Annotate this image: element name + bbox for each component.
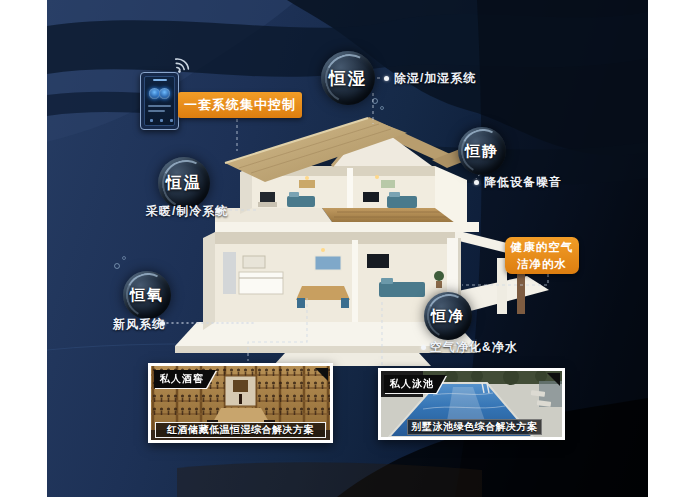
card-corner-ribbon — [547, 373, 560, 386]
bullet-dot — [421, 345, 426, 350]
smart-controller-phone — [140, 72, 179, 130]
bubble-temperature: 恒温 — [158, 157, 210, 209]
pool-card-badge: 私人泳池 — [384, 375, 446, 393]
phone-readout-row — [148, 105, 171, 107]
phone-dock-icon — [150, 119, 153, 122]
bubble-quiet: 恒静 — [458, 127, 506, 175]
wine-card-caption: 红酒储藏低温恒湿综合解决方案 — [155, 422, 326, 438]
desc-purify: 空气净化&净水 — [430, 339, 518, 356]
bubble-temperature-label: 恒温 — [166, 173, 202, 194]
bullet-dot — [216, 208, 221, 213]
phone-readout-row — [148, 110, 165, 112]
infographic-canvas: 一套系统集中控制 健康的空气 洁净的水 恒湿 除湿/加湿系统 恒静 降低设备噪音… — [0, 0, 700, 497]
artwork-background: 一套系统集中控制 健康的空气 洁净的水 恒湿 除湿/加湿系统 恒静 降低设备噪音… — [47, 0, 648, 497]
bullet-dot — [160, 321, 165, 326]
phone-app-titlebar — [153, 79, 167, 81]
control-knob-icon — [159, 88, 170, 99]
wine-card-badge-label: 私人酒窖 — [154, 370, 216, 388]
bubble-purify-label: 恒净 — [431, 307, 465, 326]
bubble-purify: 恒净 — [424, 292, 472, 340]
healthy-line2: 洁净的水 — [517, 256, 567, 273]
desc-oxygen: 新风系统 — [113, 316, 165, 333]
wine-cellar-card: 私人酒窖 红酒储藏低温恒湿综合解决方案 — [148, 363, 333, 443]
phone-dock-icon — [160, 119, 163, 122]
wifi-icon — [168, 54, 190, 74]
healthy-line1: 健康的空气 — [511, 239, 574, 256]
bullet-dot — [474, 180, 479, 185]
bubble-oxygen: 恒氧 — [123, 271, 171, 319]
desc-humidity: 除湿/加湿系统 — [394, 70, 476, 87]
phone-screen — [144, 76, 175, 126]
card-corner-ribbon — [315, 368, 328, 381]
bubble-quiet-label: 恒静 — [465, 142, 499, 161]
phone-dock-icon — [170, 119, 173, 122]
pool-card-caption: 别墅泳池绿色综合解决方案 — [407, 419, 542, 435]
bullet-dot — [384, 76, 389, 81]
desc-quiet: 降低设备噪音 — [484, 174, 562, 191]
central-control-label: 一套系统集中控制 — [184, 96, 296, 114]
pool-card: 私人泳池 别墅泳池绿色综合解决方案 — [378, 368, 565, 440]
central-control-callout: 一套系统集中控制 — [178, 92, 302, 118]
bubble-humidity: 恒湿 — [321, 51, 375, 105]
pool-card-badge-label: 私人泳池 — [384, 375, 446, 393]
wine-card-badge: 私人酒窖 — [154, 370, 216, 388]
bubble-humidity-label: 恒湿 — [329, 67, 367, 90]
healthy-air-water-callout: 健康的空气 洁净的水 — [505, 237, 579, 274]
bubble-oxygen-label: 恒氧 — [130, 286, 164, 305]
